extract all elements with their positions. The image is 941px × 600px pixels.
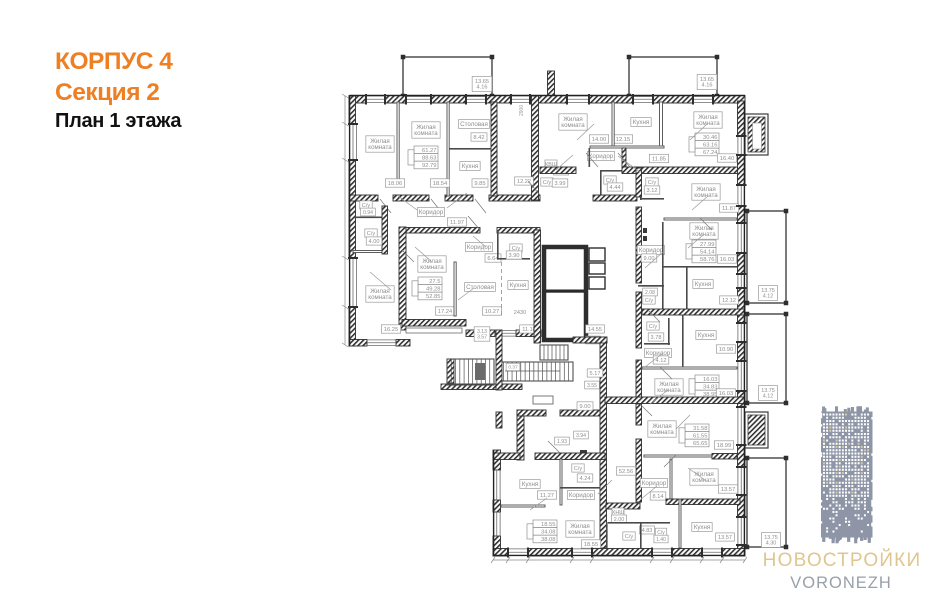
svg-text:11.87: 11.87 <box>722 206 736 212</box>
svg-text:14.55: 14.55 <box>588 327 602 333</box>
svg-text:Кухня: Кухня <box>462 163 479 170</box>
svg-text:комната: комната <box>414 130 438 137</box>
svg-text:4.00: 4.00 <box>369 239 380 245</box>
svg-text:4.12: 4.12 <box>656 358 667 364</box>
svg-text:С/у: С/у <box>648 180 657 186</box>
svg-text:Кухня: Кухня <box>698 332 715 339</box>
svg-text:Столовая: Столовая <box>466 284 494 291</box>
svg-text:52.85: 52.85 <box>426 294 441 300</box>
svg-text:5.17: 5.17 <box>590 371 601 377</box>
svg-text:16.03: 16.03 <box>719 391 734 397</box>
svg-text:С/у: С/у <box>625 534 634 540</box>
svg-text:комната: комната <box>696 120 720 127</box>
svg-text:10.90: 10.90 <box>719 347 734 353</box>
svg-text:1.40: 1.40 <box>656 537 666 543</box>
svg-text:9.85: 9.85 <box>474 181 485 187</box>
svg-text:61.55: 61.55 <box>693 433 708 439</box>
svg-text:Коридор: Коридор <box>467 244 492 251</box>
svg-text:13.57: 13.57 <box>718 535 732 541</box>
svg-text:4.83: 4.83 <box>642 528 653 534</box>
svg-text:комната: комната <box>692 477 716 484</box>
svg-text:комната: комната <box>568 529 592 536</box>
svg-text:комната: комната <box>368 294 392 301</box>
svg-text:16.25: 16.25 <box>384 327 399 333</box>
svg-text:Коридор: Коридор <box>589 153 614 160</box>
svg-text:Коридор: Коридор <box>569 492 594 499</box>
svg-text:С/у: С/у <box>574 466 583 472</box>
svg-text:С/у: С/у <box>649 324 658 330</box>
svg-text:49.28: 49.28 <box>426 286 441 292</box>
svg-text:Кухня: Кухня <box>633 119 650 126</box>
svg-text:8.42: 8.42 <box>473 135 484 141</box>
svg-text:67.24: 67.24 <box>703 150 718 156</box>
svg-text:комната: комната <box>420 264 444 271</box>
svg-text:3.78: 3.78 <box>651 335 662 341</box>
svg-text:3.90: 3.90 <box>509 253 520 259</box>
svg-text:Коридор: Коридор <box>639 247 664 254</box>
svg-text:Коридор: Коридор <box>642 480 667 487</box>
svg-text:Кухня: Кухня <box>695 281 712 288</box>
svg-text:9.00: 9.00 <box>579 404 590 410</box>
svg-text:30.46: 30.46 <box>703 135 718 141</box>
svg-text:10.27: 10.27 <box>485 309 500 315</box>
svg-text:4.16: 4.16 <box>477 85 488 91</box>
svg-text:16.40: 16.40 <box>720 156 735 162</box>
svg-text:52.56: 52.56 <box>619 469 634 475</box>
svg-text:3.94: 3.94 <box>576 433 586 439</box>
svg-text:18.55: 18.55 <box>541 522 556 528</box>
svg-text:34.08: 34.08 <box>541 529 556 535</box>
svg-text:комната: комната <box>694 192 718 199</box>
svg-text:С/у: С/у <box>367 231 376 237</box>
svg-text:VORONEZH: VORONEZH <box>790 574 892 592</box>
svg-text:11.97: 11.97 <box>450 220 464 226</box>
svg-text:11.85: 11.85 <box>652 157 666 163</box>
svg-text:8.14: 8.14 <box>653 494 664 500</box>
svg-text:0.37: 0.37 <box>508 365 518 371</box>
svg-text:88.63: 88.63 <box>422 155 437 161</box>
svg-text:27.99: 27.99 <box>700 242 715 248</box>
svg-text:18.54: 18.54 <box>433 181 448 187</box>
svg-text:3.12: 3.12 <box>647 188 658 194</box>
svg-text:13.57: 13.57 <box>721 487 736 493</box>
svg-text:Коридор: Коридор <box>419 209 444 216</box>
svg-text:54.14: 54.14 <box>700 249 715 255</box>
svg-text:Кухня: Кухня <box>510 282 527 289</box>
svg-text:92.79: 92.79 <box>422 163 437 169</box>
svg-text:18.99: 18.99 <box>717 443 732 449</box>
svg-text:2.08: 2.08 <box>645 290 655 296</box>
svg-text:65.65: 65.65 <box>693 441 708 447</box>
svg-text:17.24: 17.24 <box>438 309 453 315</box>
svg-text:НОВОСТРОЙКИ: НОВОСТРОЙКИ <box>763 549 922 571</box>
svg-text:2430: 2430 <box>514 310 526 316</box>
svg-text:31.58: 31.58 <box>693 426 708 432</box>
svg-text:Кухня: Кухня <box>522 481 539 488</box>
svg-text:3.99: 3.99 <box>555 181 566 187</box>
svg-text:12.12: 12.12 <box>722 298 736 304</box>
svg-text:4.24: 4.24 <box>580 476 591 482</box>
svg-text:0.94: 0.94 <box>363 210 373 216</box>
svg-text:16.03: 16.03 <box>703 377 718 383</box>
svg-text:комната: комната <box>692 231 716 238</box>
svg-text:комната: комната <box>368 144 392 151</box>
svg-text:63.16: 63.16 <box>703 142 718 148</box>
svg-text:2900: 2900 <box>519 105 525 116</box>
svg-text:3.57: 3.57 <box>477 334 487 340</box>
svg-text:комната: комната <box>561 122 585 129</box>
svg-text:С/у: С/у <box>645 298 654 304</box>
svg-text:4.12: 4.12 <box>763 393 774 399</box>
svg-text:1.93: 1.93 <box>557 439 567 445</box>
svg-text:4.44: 4.44 <box>610 185 621 191</box>
svg-text:16.03: 16.03 <box>720 257 735 263</box>
svg-text:34.83: 34.83 <box>703 384 718 390</box>
svg-text:27.5: 27.5 <box>429 279 440 285</box>
svg-text:58.76: 58.76 <box>700 257 715 263</box>
svg-text:3.55: 3.55 <box>587 383 597 389</box>
svg-text:18.55: 18.55 <box>584 542 599 548</box>
svg-text:4.30: 4.30 <box>766 540 777 546</box>
svg-text:4.16: 4.16 <box>702 83 713 89</box>
svg-text:комната: комната <box>657 387 681 394</box>
svg-text:Кухня: Кухня <box>694 524 711 531</box>
svg-text:4.12: 4.12 <box>763 293 774 299</box>
svg-text:Столовая: Столовая <box>460 121 488 128</box>
svg-text:38.08: 38.08 <box>541 537 556 543</box>
svg-text:12.15: 12.15 <box>616 137 631 143</box>
svg-text:комната: комната <box>650 429 674 436</box>
svg-text:14.00: 14.00 <box>592 137 607 143</box>
svg-text:С/у: С/у <box>543 180 552 186</box>
svg-text:61.27: 61.27 <box>422 148 437 154</box>
svg-text:18.06: 18.06 <box>388 181 403 187</box>
